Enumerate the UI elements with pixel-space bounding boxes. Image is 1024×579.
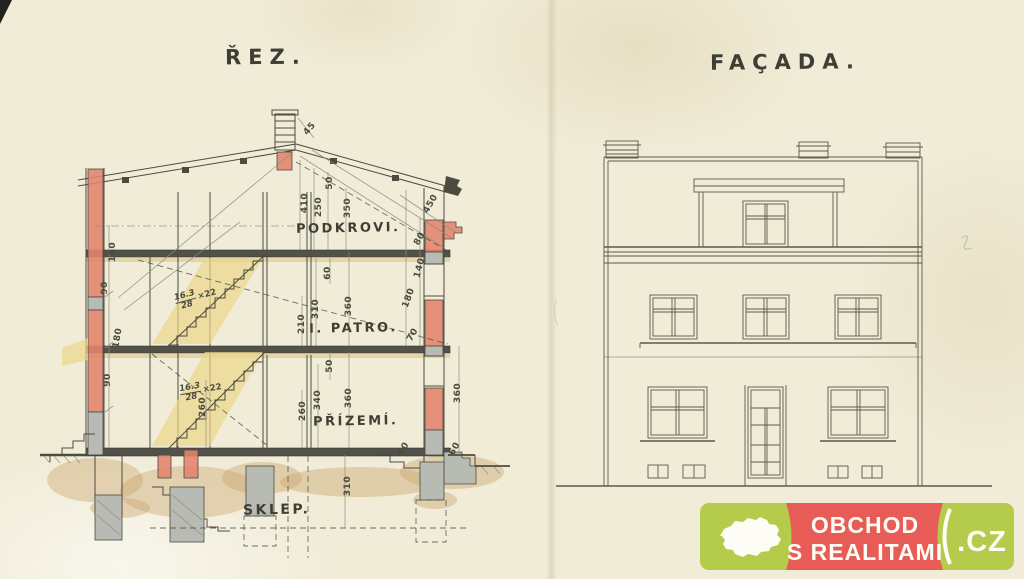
dimension-label: 210	[297, 314, 307, 334]
facade-chimneys	[603, 141, 923, 158]
dimension-label: 250	[314, 197, 324, 217]
dimension-label: 310	[311, 299, 321, 319]
logo-text-line2: S REALITAMI	[787, 539, 943, 565]
floor-label: PŘÍZEMÍ.	[313, 413, 399, 429]
section-right-wall	[424, 186, 476, 484]
logo-text-cz: .CZ	[957, 526, 1007, 558]
dimension-label: 60	[323, 266, 333, 280]
facade-attic	[604, 179, 922, 263]
section-title: ŘEZ.	[225, 45, 307, 70]
dimension-label: 410	[300, 193, 310, 213]
section-roof	[78, 110, 462, 196]
facade-first-floor-windows	[604, 295, 922, 357]
dimension-label: 310	[343, 476, 353, 496]
facade-ground-floor	[640, 385, 896, 486]
dimension-label: 360	[344, 388, 354, 408]
dimension-label: 340	[313, 390, 323, 410]
dimension-label: 360	[344, 296, 354, 316]
scanned-architectural-drawing: ŘEZ. FAÇADA. PODKROVI.I. PATRO.PŘÍZEMÍ.S…	[0, 0, 1024, 579]
watermark-logo: OBCHOD S REALITAMI .CZ	[700, 503, 1014, 570]
floor-label: SKLEP.	[243, 501, 311, 518]
facade-outline	[556, 157, 992, 486]
floor-label: PODKROVI.	[296, 220, 401, 237]
logo-text-line1: OBCHOD	[811, 512, 919, 538]
dimension-label: 50	[325, 176, 335, 190]
dimension-label: 90	[103, 373, 113, 387]
section-braces-and-guides	[95, 150, 452, 446]
floor-label: I. PATRO.	[309, 320, 398, 337]
dimension-label: 260	[298, 401, 308, 421]
dimension-label: 50	[325, 359, 335, 373]
logo-graphic: OBCHOD S REALITAMI .CZ	[700, 503, 1014, 570]
dimension-label: 350	[343, 198, 353, 218]
facade-title: FAÇADA.	[710, 49, 861, 75]
dimension-label: 180	[108, 242, 118, 262]
paper-pencil-marks	[554, 236, 972, 326]
drawing-linework	[0, 0, 1024, 579]
dimension-label: 90	[100, 281, 110, 295]
dimension-label: 360	[453, 383, 463, 403]
